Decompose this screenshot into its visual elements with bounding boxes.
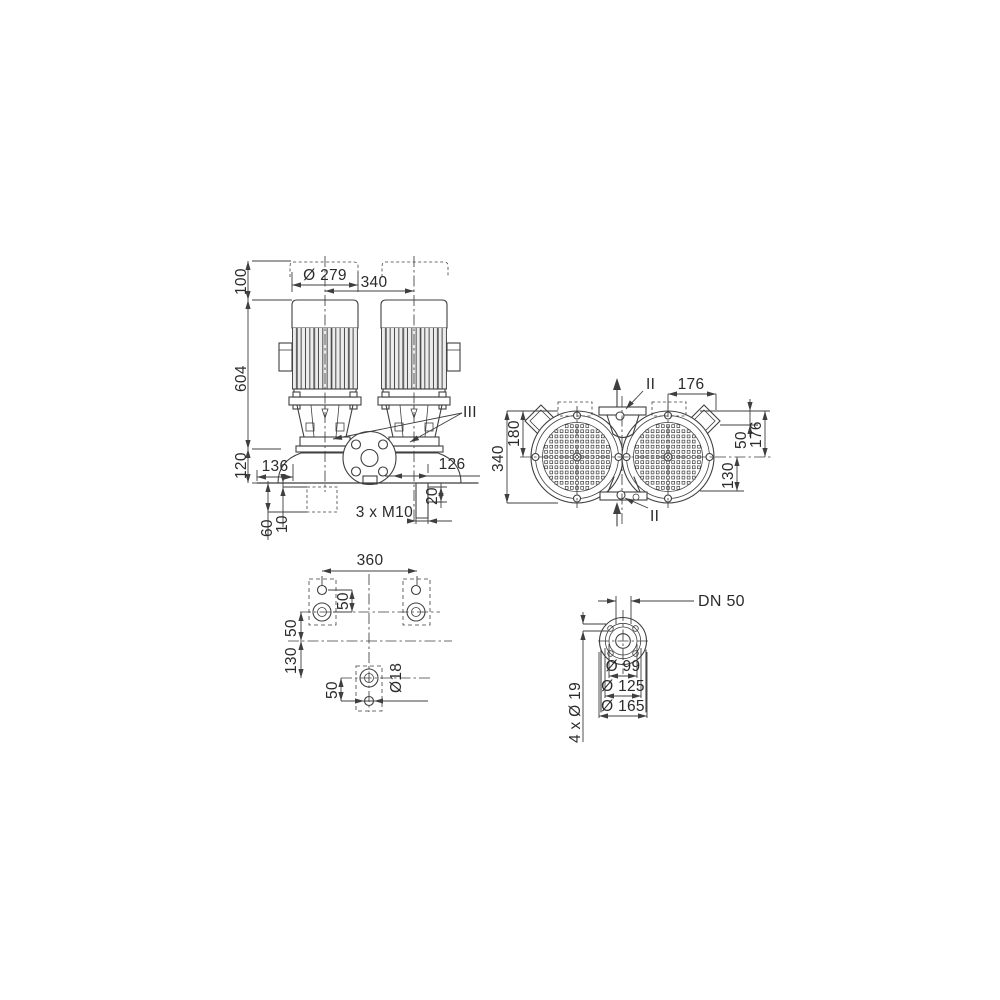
dim-right-port: 126 <box>439 456 466 473</box>
dim-outer-diameter: Ø 165 <box>601 698 645 715</box>
dim-plan-depth: 176 <box>748 421 765 448</box>
dim-bolt-circle: Ø 125 <box>601 678 645 695</box>
dim-foundation-gap: 10 <box>274 515 291 533</box>
right-fan-cover <box>622 405 720 503</box>
dim-left-port: 136 <box>262 458 289 475</box>
dim-plan-half-width: 180 <box>506 420 523 447</box>
section-mark-II-bottom: II <box>650 508 659 525</box>
dim-port-pitch: 176 <box>678 376 705 393</box>
dim-motor-clearance: 100 <box>233 268 250 295</box>
dim-hole-gap: 50 <box>335 592 352 610</box>
dim-nominal-bore: DN 50 <box>698 593 745 610</box>
technical-drawing: 100 604 120 Ø 279 340 136 126 20 3 x M10… <box>0 0 1000 1000</box>
dim-total-height: 604 <box>233 365 250 392</box>
left-terminal-box <box>279 343 292 371</box>
left-motor <box>279 300 361 452</box>
right-terminal-box <box>447 343 460 371</box>
top-view <box>525 378 720 526</box>
flow-arrow-bottom <box>613 502 621 514</box>
dim-row-spacing: 130 <box>283 647 300 674</box>
section-mark-II-top: II <box>646 376 655 393</box>
right-motor <box>378 300 460 452</box>
dim-row-offset: 50 <box>283 619 300 637</box>
section-mark-III: III <box>463 404 477 421</box>
dim-base-height: 120 <box>233 452 250 479</box>
dim-foot-gap: 50 <box>324 681 341 699</box>
dim-face-diameter: Ø 99 <box>606 658 641 675</box>
dim-motor-diameter: Ø 279 <box>303 267 347 284</box>
dim-bolt-holes: 4 x Ø 19 <box>567 682 584 743</box>
flow-arrow-top <box>613 378 621 390</box>
dim-anchor-hole-dia: Ø18 <box>388 663 405 693</box>
front-elevation-view <box>257 300 478 518</box>
dim-plan-lower: 130 <box>720 462 737 489</box>
dim-foot-slot: 20 <box>424 487 441 505</box>
dim-base-length: 360 <box>357 552 384 569</box>
pump-dimension-drawing-page: 100 604 120 Ø 279 340 136 126 20 3 x M10… <box>0 0 1000 1000</box>
dim-motor-spacing: 340 <box>361 274 388 291</box>
dim-plan-width: 340 <box>490 445 507 472</box>
dim-foot-thread: 3 x M10 <box>356 504 413 521</box>
